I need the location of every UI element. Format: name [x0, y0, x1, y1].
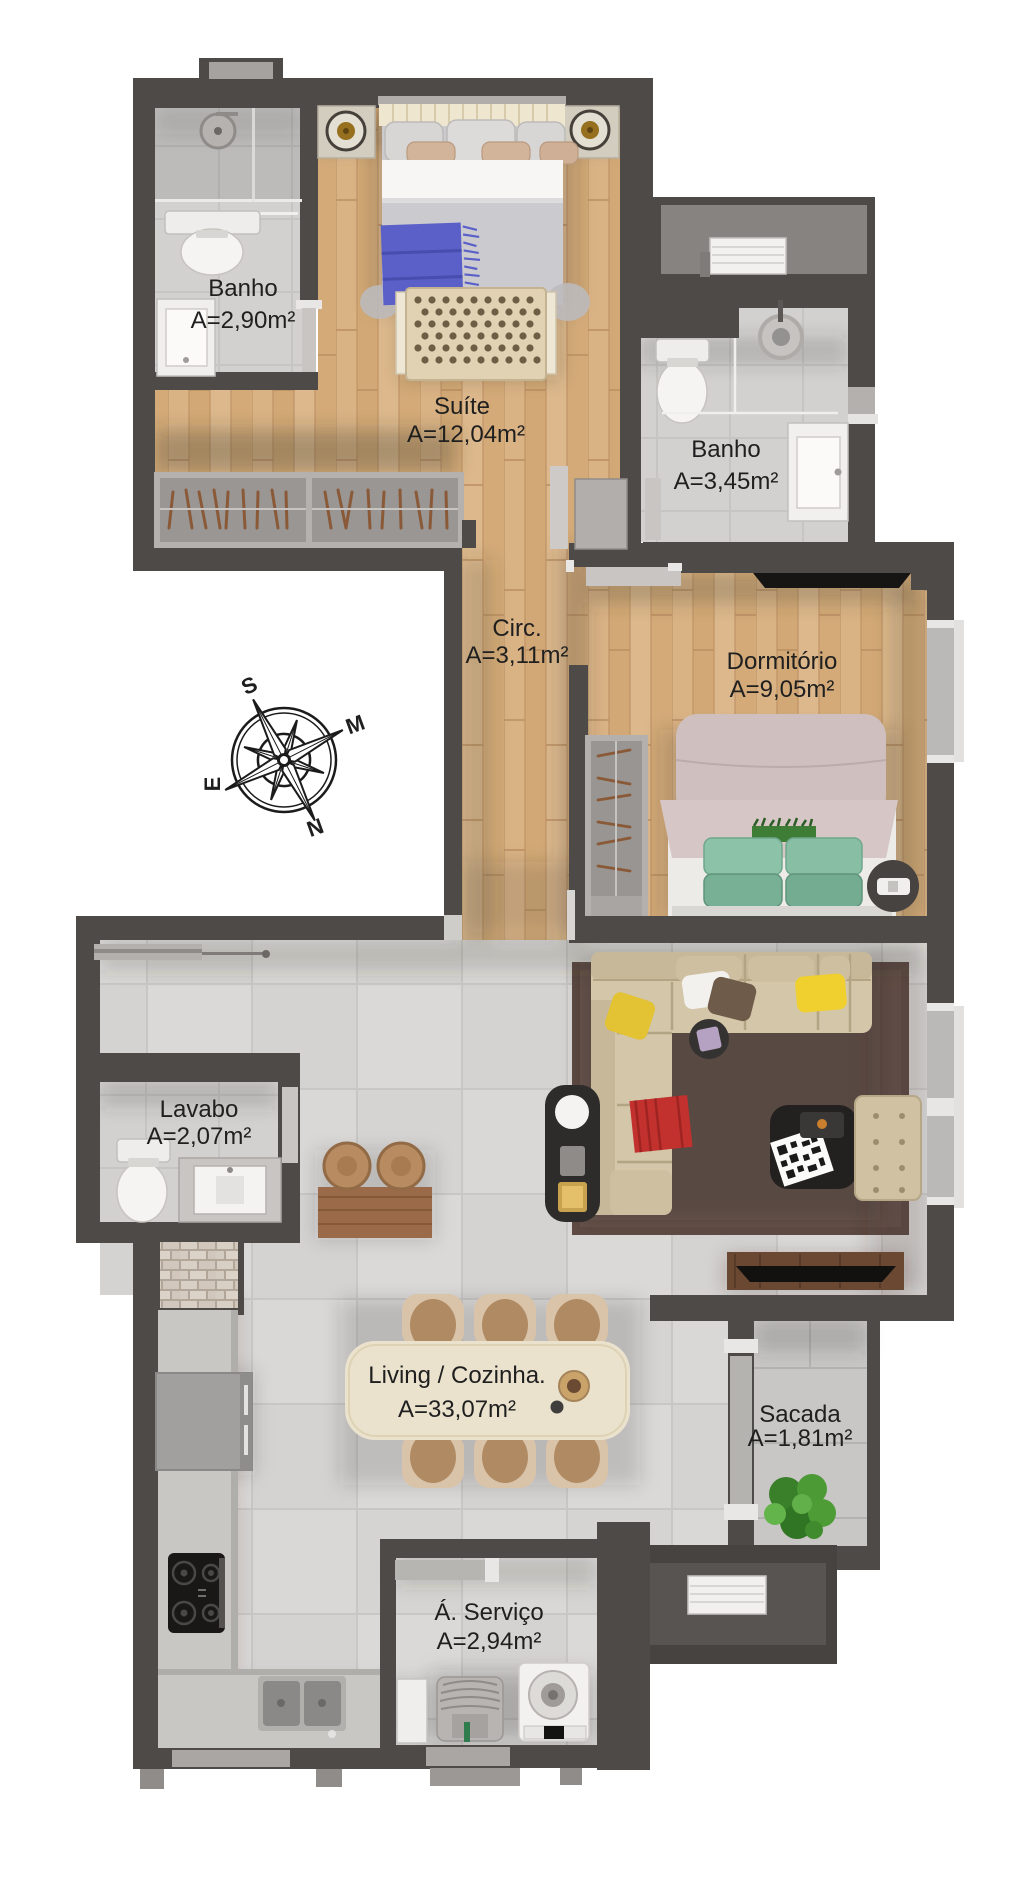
svg-text:A=2,94m²: A=2,94m² — [437, 1628, 542, 1655]
svg-text:A=2,07m²: A=2,07m² — [147, 1123, 252, 1150]
svg-text:A=12,04m²: A=12,04m² — [407, 421, 525, 448]
svg-text:E: E — [200, 777, 225, 792]
svg-text:Banho: Banho — [208, 275, 277, 302]
svg-text:Sacada: Sacada — [759, 1401, 841, 1428]
svg-text:A=1,81m²: A=1,81m² — [748, 1425, 853, 1452]
svg-text:A=3,45m²: A=3,45m² — [674, 468, 779, 495]
svg-text:Living / Cozinha.: Living / Cozinha. — [368, 1362, 545, 1389]
svg-text:Lavabo: Lavabo — [160, 1096, 239, 1123]
svg-text:A=2,90m²: A=2,90m² — [191, 307, 296, 334]
svg-text:Á. Serviço: Á. Serviço — [434, 1599, 543, 1626]
svg-text:Banho: Banho — [691, 436, 760, 463]
svg-text:Circ.: Circ. — [492, 615, 541, 642]
svg-text:A=33,07m²: A=33,07m² — [398, 1396, 516, 1423]
svg-text:A=3,11m²: A=3,11m² — [466, 642, 569, 669]
svg-text:Suíte: Suíte — [434, 393, 490, 420]
svg-text:A=9,05m²: A=9,05m² — [730, 676, 835, 703]
svg-text:Dormitório: Dormitório — [727, 648, 838, 675]
